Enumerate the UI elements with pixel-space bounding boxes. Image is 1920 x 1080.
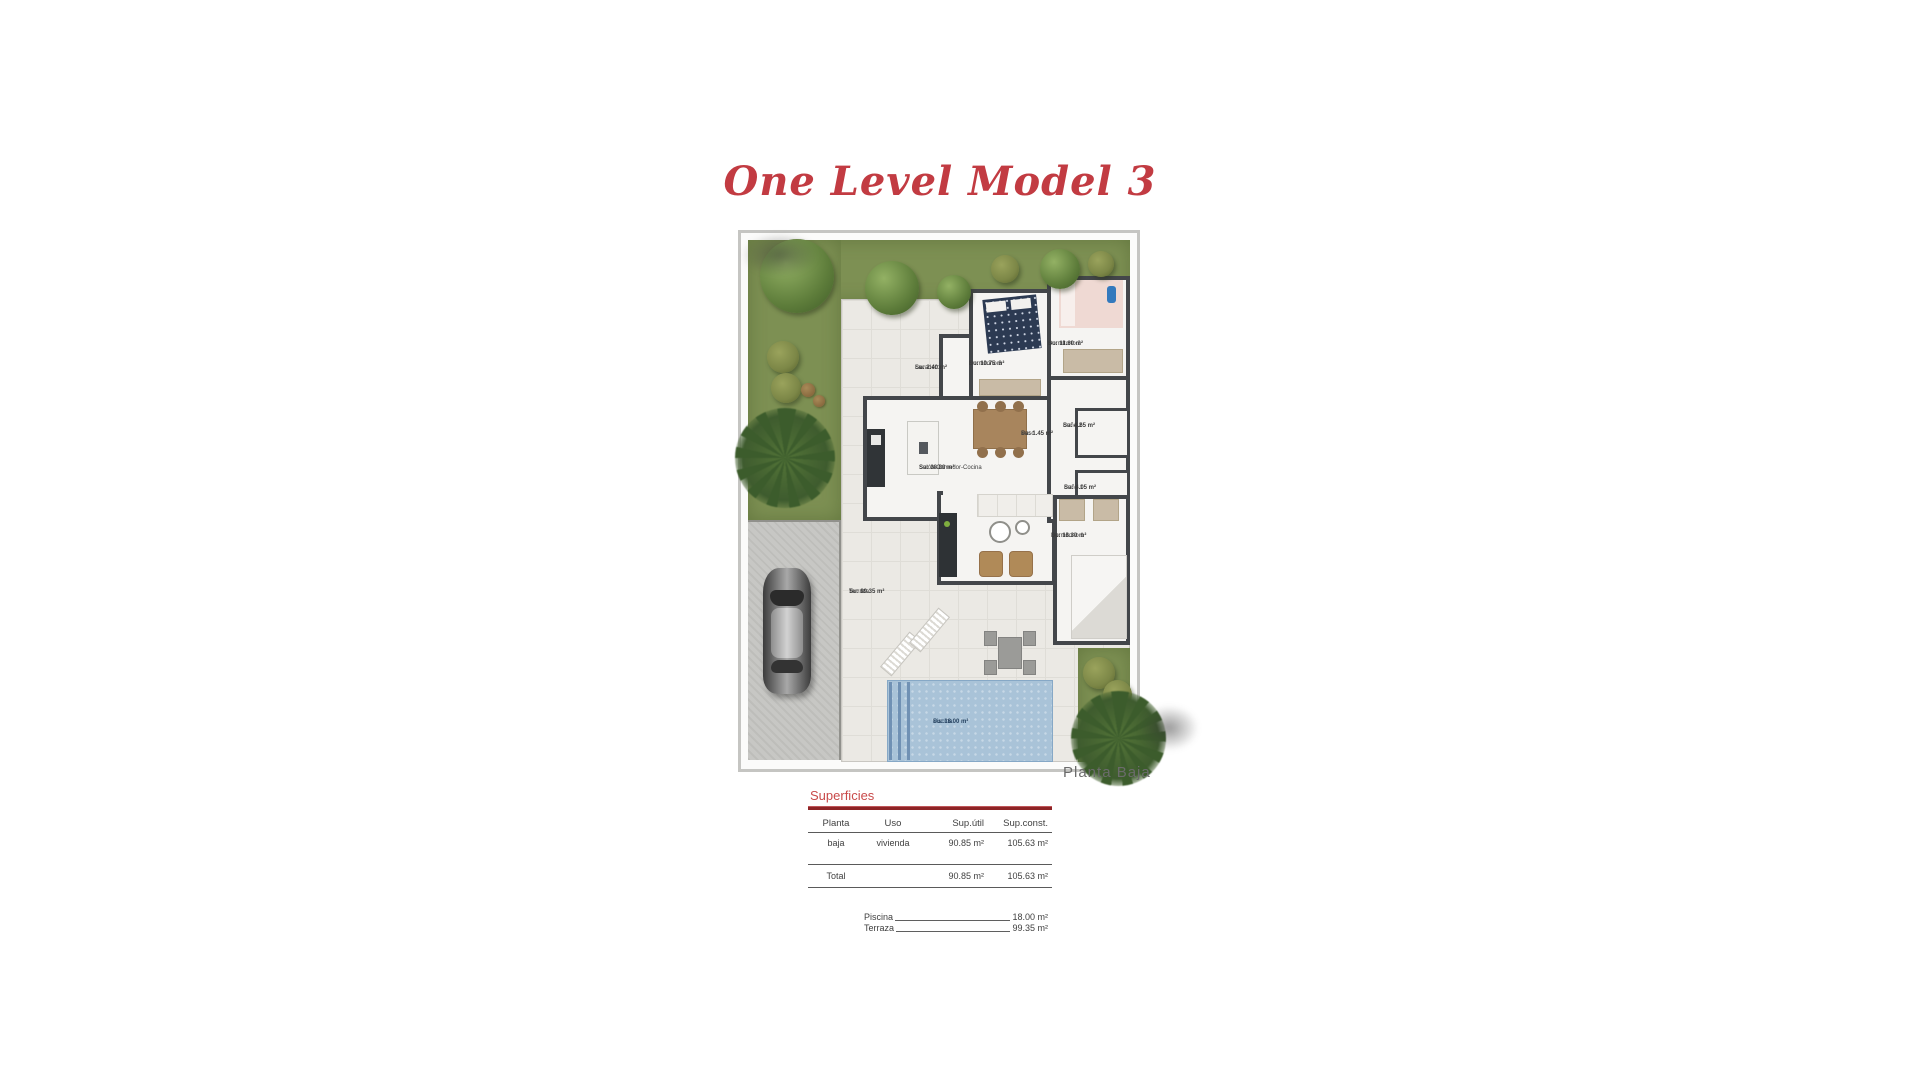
tree [865, 261, 919, 315]
tree [937, 275, 971, 309]
bush [771, 373, 801, 403]
palm-shadow [1139, 705, 1199, 751]
cell-sup-util: 90.85 m² [926, 838, 984, 848]
tree-shadow [741, 233, 819, 277]
coffee-table [989, 521, 1011, 543]
superficies-extras: Piscina 18.00 m² Terraza 99.35 m² [864, 912, 1048, 934]
superficies-header-row: Planta Uso Sup.útil Sup.const. [808, 818, 1052, 833]
bed-dormitorio-1 [1071, 555, 1127, 639]
wardrobe-dormitorio-1a [1059, 499, 1085, 521]
bed-dormitorio-2 [1059, 280, 1123, 328]
dining-chair [995, 401, 1006, 412]
col-header-uso: Uso [862, 818, 924, 829]
total-sup-const: 105.63 m² [986, 871, 1048, 881]
tv-wall [939, 513, 957, 577]
wardrobe-dormitorio-2 [1063, 349, 1123, 373]
palm-tree [735, 408, 835, 508]
cell-planta: baja [812, 838, 860, 848]
extra-row-terraza: Terraza 99.35 m² [864, 923, 1048, 934]
extra-value: 99.35 m² [1012, 923, 1048, 934]
col-header-sup-util: Sup.útil [926, 818, 984, 829]
superficies-title: Superficies [810, 788, 1052, 803]
tree [1040, 249, 1080, 289]
shrub [801, 383, 815, 397]
dining-table [973, 409, 1027, 449]
superficies-section: Superficies Planta Uso Sup.útil Sup.cons… [808, 788, 1052, 934]
bush [991, 255, 1019, 283]
bed-dormitorio-3 [982, 294, 1041, 353]
shrub [813, 395, 825, 407]
dining-chair [1013, 401, 1024, 412]
superficies-rule [808, 806, 1052, 810]
dining-chair [995, 447, 1006, 458]
kitchen-counter [867, 429, 885, 487]
dining-chair [1013, 447, 1024, 458]
dining-chair [977, 447, 988, 458]
bush [1088, 251, 1114, 277]
total-sup-util: 90.85 m² [926, 871, 984, 881]
extra-row-piscina: Piscina 18.00 m² [864, 912, 1048, 923]
wardrobe-dormitorio-3 [979, 379, 1041, 396]
extra-label: Piscina [864, 912, 893, 923]
armchair [1009, 551, 1033, 577]
plan-caption: Planta Baja [1063, 764, 1151, 781]
sofa [977, 494, 1053, 517]
superficies-data-row: baja vivienda 90.85 m² 105.63 m² [808, 833, 1052, 864]
leader-line [896, 931, 1010, 932]
total-label: Total [812, 871, 860, 881]
superficies-total-row: Total 90.85 m² 105.63 m² [808, 864, 1052, 888]
pool [887, 680, 1053, 762]
dining-chair [977, 401, 988, 412]
coffee-table-small [1015, 520, 1030, 535]
page-title: One Level Model 3 [700, 158, 1180, 205]
extra-label: Terraza [864, 923, 894, 934]
car [763, 568, 811, 694]
pool-steps [889, 682, 911, 760]
col-header-planta: Planta [812, 818, 860, 829]
cell-uso: vivienda [862, 838, 924, 848]
extra-value: 18.00 m² [1012, 912, 1048, 923]
armchair [979, 551, 1003, 577]
leader-line [895, 920, 1010, 921]
floor-plan: LavaderoSu: 2.40 m² Dormitorio 3Su: 10.7… [738, 230, 1140, 772]
bush [767, 341, 799, 373]
col-header-sup-const: Sup.const. [986, 818, 1048, 829]
room-bano-2 [1075, 408, 1130, 458]
wardrobe-dormitorio-1b [1093, 499, 1119, 521]
outdoor-dining-set [984, 629, 1036, 677]
cell-sup-const: 105.63 m² [986, 838, 1048, 848]
